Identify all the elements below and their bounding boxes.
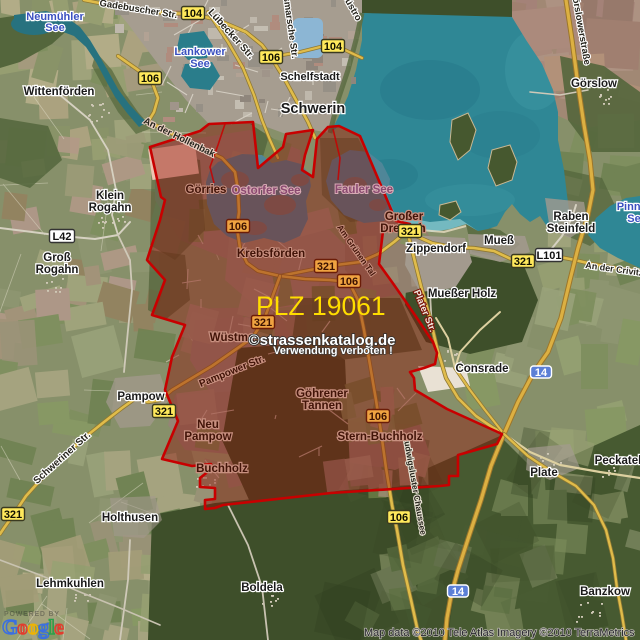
- svg-text:Map data ©2010 Tele Atlas Ima: Map data ©2010 Tele Atlas Imagery ©2010 …: [364, 627, 635, 639]
- svg-text:Rogahn: Rogahn: [89, 202, 132, 214]
- svg-text:321: 321: [155, 406, 173, 418]
- svg-text:o: o: [28, 615, 39, 639]
- svg-text:Mueßer Holz: Mueßer Holz: [428, 288, 497, 300]
- svg-text:321: 321: [4, 509, 22, 521]
- svg-text:e: e: [54, 615, 63, 639]
- svg-text:Steinfeld: Steinfeld: [547, 223, 596, 235]
- svg-text:Pampow: Pampow: [117, 391, 164, 403]
- svg-text:321: 321: [317, 261, 335, 273]
- svg-text:L42: L42: [53, 231, 72, 243]
- svg-text:Lehmkuhlen: Lehmkuhlen: [36, 578, 104, 590]
- svg-text:L101: L101: [536, 250, 561, 262]
- svg-text:g: g: [38, 615, 49, 639]
- svg-text:Buchholz: Buchholz: [196, 463, 248, 475]
- svg-text:Klein: Klein: [96, 190, 124, 202]
- svg-text:106: 106: [262, 52, 280, 64]
- svg-text:Ostorfer See: Ostorfer See: [231, 185, 300, 197]
- svg-text:Neu: Neu: [197, 419, 219, 431]
- svg-text:Lankower: Lankower: [174, 46, 226, 58]
- svg-text:Pampow: Pampow: [184, 431, 231, 443]
- svg-text:104: 104: [324, 41, 343, 53]
- svg-text:Fauler See: Fauler See: [335, 184, 393, 196]
- svg-text:Banzkow: Banzkow: [580, 586, 630, 598]
- svg-text:Pinno: Pinno: [617, 201, 640, 213]
- svg-text:Zippendorf: Zippendorf: [406, 243, 466, 255]
- svg-text:321: 321: [401, 226, 419, 238]
- svg-text:106: 106: [141, 73, 159, 85]
- svg-text:14: 14: [535, 367, 548, 379]
- svg-text:106: 106: [369, 411, 387, 423]
- svg-text:G: G: [2, 615, 18, 639]
- svg-text:Schwerin: Schwerin: [281, 101, 345, 117]
- svg-text:14: 14: [452, 586, 465, 598]
- svg-text:Göhrener: Göhrener: [296, 388, 348, 400]
- svg-text:Großer: Großer: [385, 211, 424, 223]
- svg-text:Plate: Plate: [530, 467, 558, 479]
- svg-text:Boldela: Boldela: [241, 582, 283, 594]
- svg-text:106: 106: [229, 221, 247, 233]
- svg-text:Groß: Groß: [43, 252, 70, 264]
- svg-text:104: 104: [184, 8, 203, 20]
- svg-text:321: 321: [514, 256, 532, 268]
- svg-text:See: See: [45, 22, 65, 34]
- svg-text:See: See: [190, 58, 210, 70]
- svg-text:Wittenförden: Wittenförden: [24, 86, 95, 98]
- svg-text:Görslow: Görslow: [571, 78, 617, 90]
- svg-text:Tannen: Tannen: [302, 400, 342, 412]
- svg-text:Raben: Raben: [553, 211, 588, 223]
- svg-text:Verwendung verboten !: Verwendung verboten !: [273, 345, 392, 357]
- svg-text:Consrade: Consrade: [455, 363, 508, 375]
- svg-text:106: 106: [340, 276, 358, 288]
- svg-text:Krebsförden: Krebsförden: [237, 248, 305, 260]
- svg-text:PLZ 19061: PLZ 19061: [256, 291, 386, 321]
- svg-text:Stern-Buchholz: Stern-Buchholz: [338, 431, 423, 443]
- svg-text:Mueß: Mueß: [484, 235, 514, 247]
- svg-text:Peckatel: Peckatel: [595, 455, 640, 467]
- svg-text:o: o: [17, 615, 28, 639]
- svg-text:Holthusen: Holthusen: [102, 512, 158, 524]
- svg-text:Schelfstadt: Schelfstadt: [280, 71, 340, 83]
- svg-text:Rogahn: Rogahn: [36, 264, 79, 276]
- svg-text:Görries: Görries: [186, 184, 227, 196]
- svg-text:Se: Se: [627, 213, 640, 225]
- svg-text:106: 106: [390, 512, 408, 524]
